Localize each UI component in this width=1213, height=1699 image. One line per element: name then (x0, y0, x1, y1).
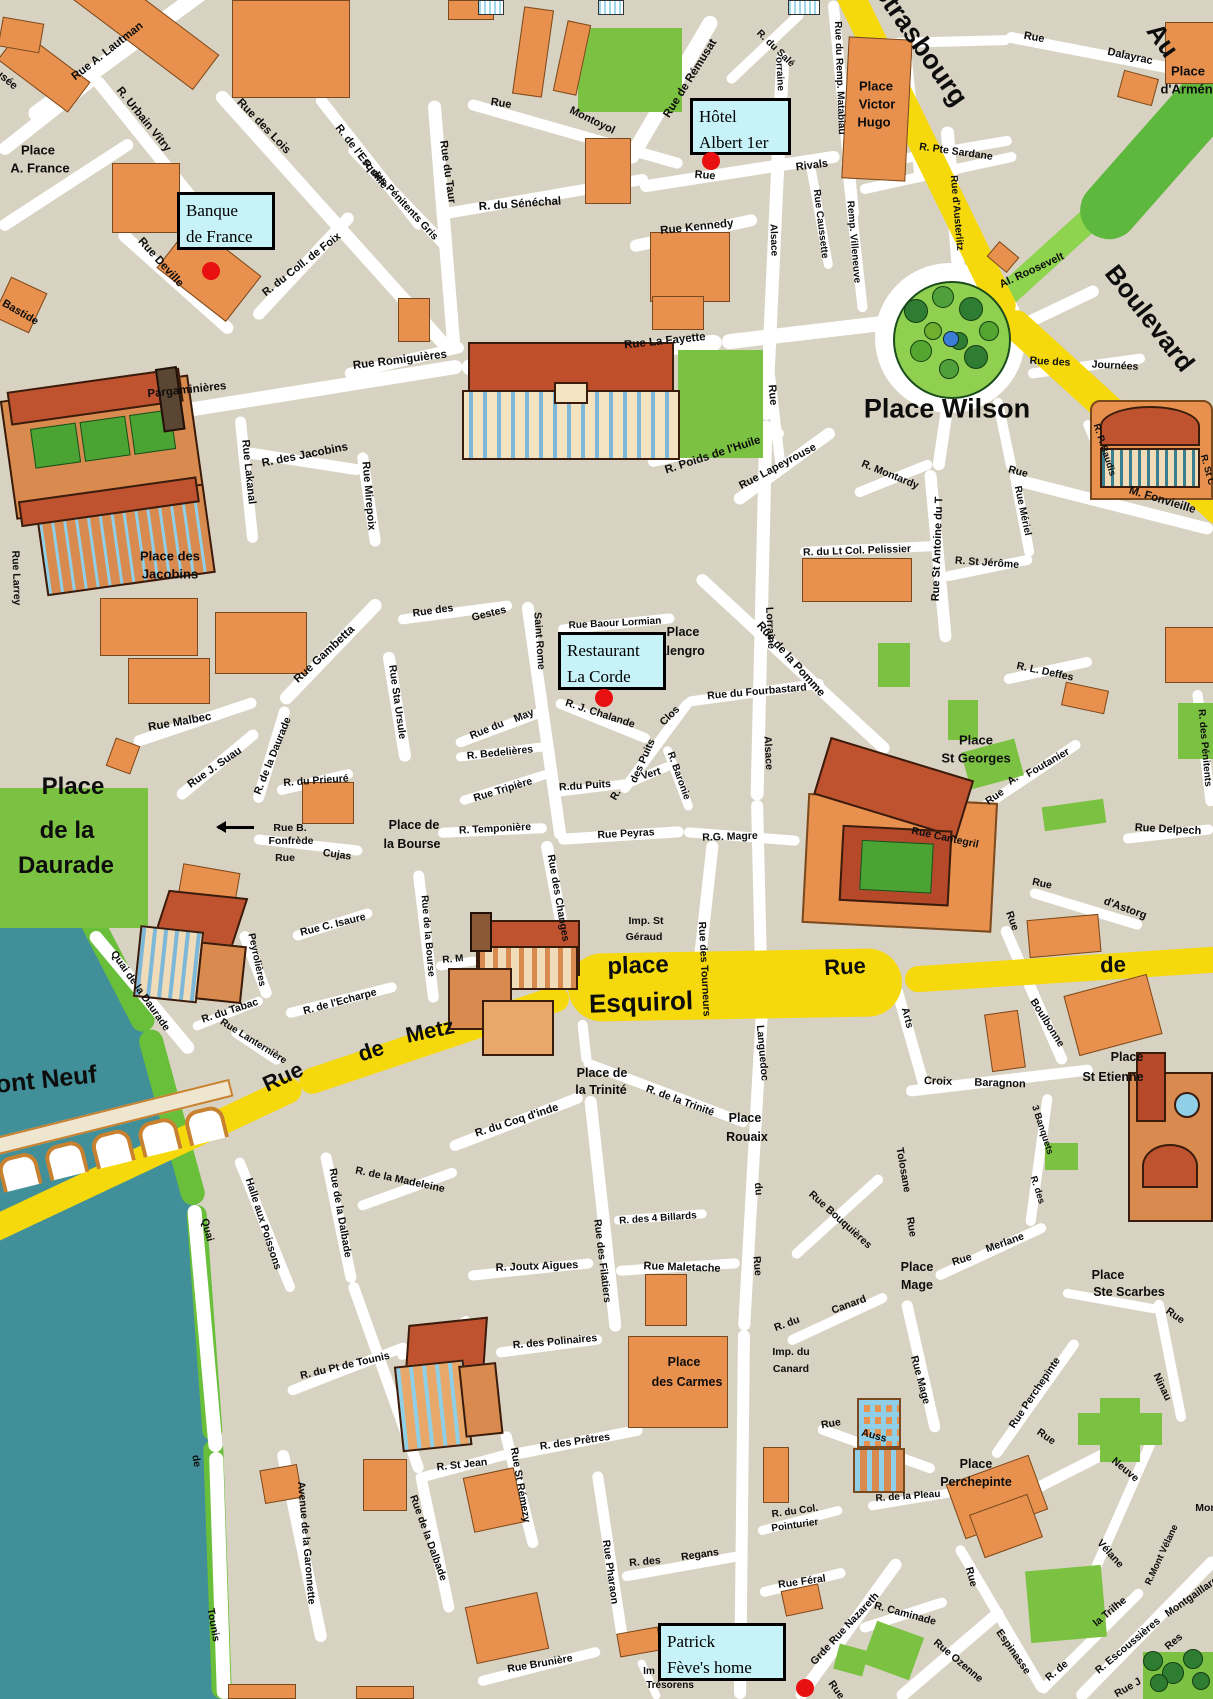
street-label: R. des Prêtres (539, 1432, 610, 1452)
street-label: Rue Caussette (811, 189, 829, 259)
street-label: Rue B. (273, 823, 306, 834)
building-block (232, 0, 350, 98)
tree-icon (939, 359, 959, 379)
street-label: 3 Banquets (1030, 1104, 1055, 1156)
street-label: Rue Perchepinte (1007, 1356, 1062, 1431)
street-label: Rue (820, 1417, 841, 1431)
street-label: Rue Larrey (10, 550, 22, 605)
jacobins-convent-illustration (0, 363, 230, 627)
street-label: de (190, 1454, 202, 1468)
street-label: R. M (442, 954, 464, 966)
street-label: R. Bedelières (466, 744, 533, 761)
street-label: Alsace (767, 224, 778, 257)
street-label: Place de (577, 1067, 628, 1080)
tree-icon (904, 299, 928, 323)
street-label: Rue Mirepoix (360, 461, 377, 531)
tree-icon (1150, 1674, 1168, 1692)
street-label: Rue Tripière (472, 776, 533, 804)
building-block (398, 298, 430, 342)
street-label: Rue de la Bourse (418, 895, 435, 977)
street-label: R. des (629, 1555, 661, 1568)
street-label: St Etienne (1082, 1071, 1143, 1084)
street-label: Esquirol (589, 987, 694, 1017)
street-label: Foutanier (1025, 746, 1072, 779)
street-label: Mage (901, 1279, 933, 1292)
building-block (1026, 914, 1101, 958)
street-label: A. France (10, 162, 69, 175)
callout-banque-de-france: Banquede France (177, 192, 275, 250)
street-label: Rue des (1029, 356, 1070, 369)
building-block (302, 782, 354, 824)
place-wilson-fountain (943, 331, 959, 347)
street-label: R. Joutx Aigues (495, 1260, 578, 1274)
park-area (878, 643, 910, 687)
marker-dot-patrick-feve-home (796, 1679, 814, 1697)
building-block (1063, 974, 1162, 1056)
tree-icon (1143, 1651, 1163, 1671)
street-label: Place (1171, 65, 1205, 78)
street-label: Res (1163, 1632, 1185, 1652)
street-label: Imp. St (628, 916, 663, 927)
park-area (1078, 1413, 1162, 1445)
park-area (1025, 1565, 1107, 1643)
street-label: Tolosane (894, 1147, 912, 1193)
building-block (363, 1459, 407, 1511)
street-label: Place (859, 80, 893, 93)
marker-dot-hotel-albert-1er (702, 152, 720, 170)
street-label: R. de l'Echarpe (302, 987, 378, 1017)
street-label: Rue Mériel (1012, 485, 1032, 537)
tree-icon (1192, 1672, 1210, 1690)
building-block (585, 138, 631, 204)
street-label: R.G. Magre (702, 831, 758, 843)
building-facade-icon (478, 0, 504, 15)
street-label: Rue (904, 1216, 918, 1237)
street-label: orraine (773, 57, 785, 91)
street-segment (721, 315, 891, 350)
street-label: du (752, 1182, 764, 1196)
building-facade-icon (598, 0, 624, 15)
street-label: Rue (766, 384, 779, 406)
toulouse-city-map[interactable]: uséeRue A. LautmanR. Urbain VitryPlaceA.… (0, 0, 1213, 1699)
street-label: Place Wilson (864, 396, 1030, 423)
building-block (984, 1010, 1026, 1072)
street-segment (786, 1291, 889, 1346)
street-label: Rue (1035, 1427, 1057, 1447)
street-label: de la (40, 819, 95, 843)
street-label: Place (901, 1261, 934, 1274)
dalbade-church-illustration (389, 1310, 511, 1459)
street-label: Rue du (469, 718, 506, 741)
street-label: R. St Jean (436, 1457, 488, 1473)
street-label: Perchepinte (940, 1476, 1012, 1489)
street-label: Saint Rome (532, 612, 547, 670)
callout-hotel-albert-1er: HôtelAlbert 1er (690, 98, 791, 155)
tree-icon (964, 345, 988, 369)
tree-icon (1183, 1649, 1203, 1669)
street-label: R. de la Trinité (644, 1084, 715, 1118)
street-label: Ste Scarbes (1093, 1286, 1165, 1299)
street-label: Rue Lanternière (218, 1018, 288, 1067)
building-block (763, 1447, 789, 1503)
building-block (645, 1274, 687, 1326)
street-label: place (607, 953, 669, 979)
street-label: la Bourse (384, 838, 441, 851)
tree-icon (932, 286, 954, 308)
street-label: Trésorens (646, 1681, 694, 1691)
street-label: Place (42, 775, 105, 799)
street-label: Rue (275, 853, 295, 864)
building-block (228, 1684, 296, 1699)
building-block (1061, 682, 1109, 715)
building-block (650, 232, 730, 302)
building-facade-icon (788, 0, 820, 15)
street-label: Place (21, 144, 55, 157)
park-area (578, 28, 682, 112)
street-label: Journées (1091, 360, 1138, 373)
street-label: Hugo (857, 116, 890, 129)
callout-patrick-feve-home: PatrickFève's home (658, 1623, 786, 1681)
street-label: Place (1092, 1269, 1125, 1282)
street-label: R. des 4 Billards (619, 1211, 697, 1226)
street-label: Pointurier (771, 1518, 819, 1534)
building-block (465, 1592, 549, 1664)
augustins-museum-illustration (790, 753, 1015, 964)
tree-icon (959, 297, 983, 321)
marker-dot-banque-de-france (202, 262, 220, 280)
street-label: Place (960, 1458, 993, 1471)
street-label: Rue J (1113, 1676, 1143, 1699)
building-block (512, 6, 554, 97)
direction-arrow (218, 826, 254, 829)
street-label: Place de (389, 819, 440, 832)
street-label: R.Mont Vélane (1144, 1523, 1180, 1586)
street-label: R. du (773, 1315, 801, 1334)
building-block (1165, 627, 1213, 683)
street-label: Mon (1195, 1503, 1213, 1514)
street-label: Fonfrède (269, 836, 314, 847)
building-block (128, 658, 210, 704)
building-block (215, 612, 307, 674)
street-label: Rue Baour Lormian (568, 617, 661, 632)
street-label: des Carmes (652, 1376, 723, 1389)
street-label: la Trinité (575, 1084, 626, 1097)
tree-icon (979, 321, 999, 341)
street-label: Rue (826, 1679, 846, 1699)
street-label: d'Arménie (1160, 83, 1213, 96)
street-label: R. du Lt Col. Pelissier (803, 544, 911, 558)
street-label: Place (668, 1356, 701, 1369)
street-label: R. des Pénitents Gris (360, 158, 440, 242)
building-block (802, 558, 912, 602)
park-area (1042, 799, 1107, 831)
street-label: Rivals (795, 159, 829, 174)
street-label: R. du Coq d'inde (474, 1102, 560, 1139)
street-label: Merlane (985, 1231, 1026, 1254)
street-label: Rue C. Isaure (299, 912, 367, 938)
street-label: Place (667, 626, 700, 639)
park-area (833, 1644, 869, 1677)
tree-icon (910, 340, 932, 362)
street-label: Rue Brunière (507, 1653, 574, 1675)
street-label: Rue du Remp. Matabiau (832, 21, 846, 135)
capitole-building-illustration (462, 342, 680, 460)
street-label: Place (959, 734, 993, 747)
street-label: Croix (924, 1076, 952, 1088)
building-block (1117, 70, 1159, 106)
street-label: May (513, 707, 536, 724)
street-label: Rue (824, 955, 867, 979)
street-label: Alsace (762, 736, 774, 770)
street-label: Jacobins (142, 568, 198, 581)
street-label: St Georges (941, 752, 1010, 765)
building-block (652, 296, 704, 330)
street-label: Place (1111, 1051, 1144, 1064)
street-label: de (1100, 954, 1126, 977)
street-label: Rue (751, 1256, 763, 1277)
street-label: Rouaix (726, 1131, 768, 1144)
street-label: Place (729, 1112, 762, 1125)
street-label: Daurade (18, 854, 114, 878)
tower-house-illustration (853, 1398, 905, 1493)
street-label: Halle aux Poissons (243, 1177, 283, 1271)
street-label: Rue de la Dalbade (327, 1168, 353, 1259)
street-label: Rue (694, 170, 716, 183)
street-label: Victor (859, 98, 896, 111)
street-label: Géraud (626, 932, 663, 943)
street-label: Cujas (322, 848, 352, 862)
callout-restaurant-la-corde: RestaurantLa Corde (558, 632, 666, 690)
street-label: Rue J. Suau (186, 745, 244, 790)
marker-dot-restaurant-la-corde (595, 689, 613, 707)
street-label: Place des (140, 550, 200, 563)
street-label: Baragnon (974, 1078, 1026, 1091)
street-label: Imp. du (772, 1347, 809, 1358)
building-block (356, 1686, 414, 1699)
street-label: Canard (773, 1364, 809, 1375)
street-label: Rue A. Lautman (70, 21, 146, 84)
street-label: Im (643, 1667, 655, 1677)
tree-icon (924, 322, 942, 340)
building-block (112, 163, 180, 233)
